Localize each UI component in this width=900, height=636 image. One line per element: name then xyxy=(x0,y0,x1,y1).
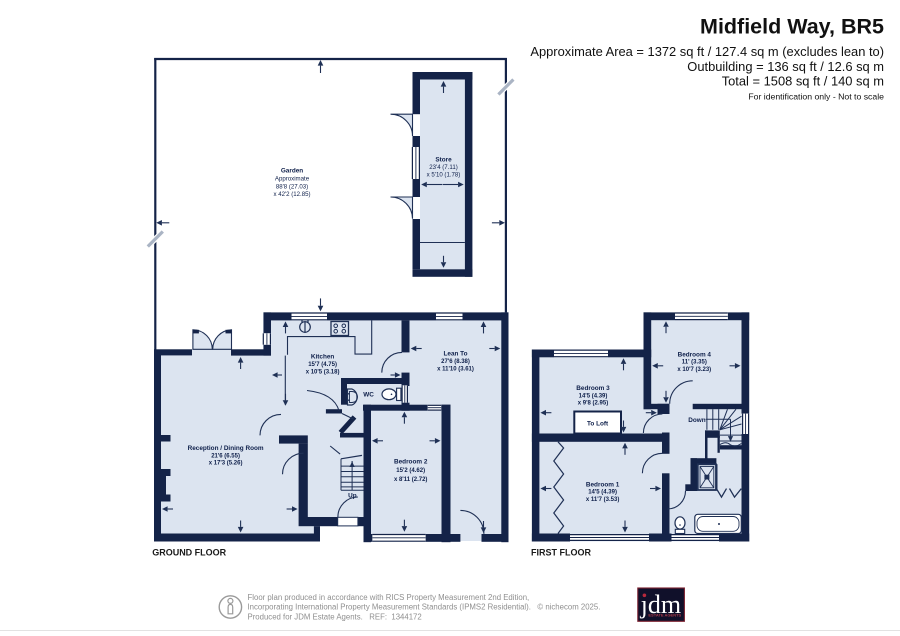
svg-text:23'4 (7.11): 23'4 (7.11) xyxy=(429,164,458,171)
svg-text:Produced for JDM Estate Agents: Produced for JDM Estate Agents. REF: 134… xyxy=(248,613,422,622)
svg-text:Approximate: Approximate xyxy=(275,176,310,183)
svg-text:27'6 (8.38): 27'6 (8.38) xyxy=(441,359,470,365)
svg-text:11' (3.35): 11' (3.35) xyxy=(682,360,707,366)
svg-text:Kitchen: Kitchen xyxy=(311,354,335,361)
svg-text:Garden: Garden xyxy=(281,168,303,175)
svg-text:FIRST FLOOR: FIRST FLOOR xyxy=(531,548,591,558)
svg-text:21'6 (6.55): 21'6 (6.55) xyxy=(211,453,240,459)
svg-text:Bedroom 1: Bedroom 1 xyxy=(586,482,620,489)
svg-text:Total = 1508 sq ft / 140 sq m: Total = 1508 sq ft / 140 sq m xyxy=(722,74,884,89)
svg-text:Outbuilding = 136 sq ft / 12.6: Outbuilding = 136 sq ft / 12.6 sq m xyxy=(687,59,884,74)
svg-text:Store: Store xyxy=(435,157,452,164)
svg-text:GROUND FLOOR: GROUND FLOOR xyxy=(152,548,226,558)
svg-text:x 5'10 (1.78): x 5'10 (1.78) xyxy=(427,172,461,179)
svg-text:x 9'8 (2.95): x 9'8 (2.95) xyxy=(578,401,608,407)
svg-text:Bedroom 4: Bedroom 4 xyxy=(678,352,712,359)
svg-text:x 8'11 (2.72): x 8'11 (2.72) xyxy=(394,477,427,483)
svg-text:To Loft: To Loft xyxy=(587,421,609,428)
svg-text:Approximate Area = 1372 sq ft: Approximate Area = 1372 sq ft / 127.4 sq… xyxy=(530,44,884,59)
svg-text:Up: Up xyxy=(348,492,357,499)
svg-text:15'7 (4.75): 15'7 (4.75) xyxy=(308,362,337,368)
svg-text:88'8 (27.03): 88'8 (27.03) xyxy=(276,184,308,191)
svg-text:x 11'7 (3.53): x 11'7 (3.53) xyxy=(586,497,619,503)
svg-text:Reception / Dining Room: Reception / Dining Room xyxy=(188,445,264,452)
svg-text:Lean To: Lean To xyxy=(443,351,467,358)
svg-text:14'5 (4.39): 14'5 (4.39) xyxy=(579,393,608,399)
svg-text:x 10'5 (3.18): x 10'5 (3.18) xyxy=(306,370,340,376)
svg-text:Bedroom 3: Bedroom 3 xyxy=(576,385,610,392)
svg-text:Floor plan produced in accorda: Floor plan produced in accordance with R… xyxy=(248,593,530,602)
svg-text:ESTATE AGENTS: ESTATE AGENTS xyxy=(648,612,681,617)
svg-text:15'2 (4.62): 15'2 (4.62) xyxy=(396,468,425,474)
svg-text:x 42'2 (12.85): x 42'2 (12.85) xyxy=(273,191,310,198)
svg-text:WC: WC xyxy=(363,391,374,398)
svg-text:x 11'10 (3.61): x 11'10 (3.61) xyxy=(437,367,474,373)
svg-text:x 10'7 (3.23): x 10'7 (3.23) xyxy=(677,367,711,373)
svg-text:Bedroom 2: Bedroom 2 xyxy=(394,459,428,466)
svg-text:Down: Down xyxy=(688,417,705,424)
svg-text:Incorporating International Pr: Incorporating International Property Mea… xyxy=(248,603,601,612)
svg-text:x 17'3 (5.26): x 17'3 (5.26) xyxy=(209,461,243,467)
svg-text:14'5 (4.39): 14'5 (4.39) xyxy=(588,490,617,496)
svg-text:Midfield Way, BR5: Midfield Way, BR5 xyxy=(700,15,884,39)
svg-text:For identification only - Not: For identification only - Not to scale xyxy=(748,92,884,102)
